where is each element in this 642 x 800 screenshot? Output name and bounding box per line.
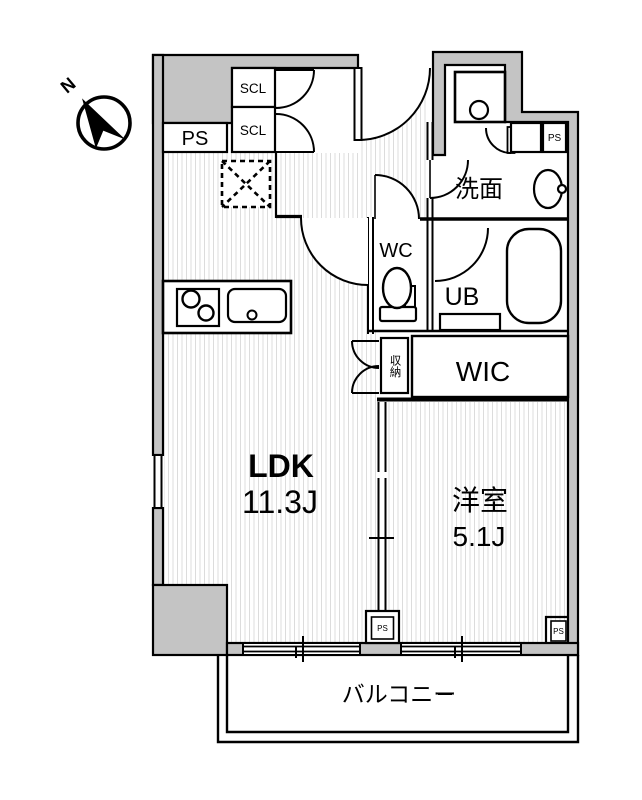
- bathtub: [440, 229, 561, 330]
- label-scl-lower: SCL: [240, 123, 267, 138]
- bath-step: [440, 314, 500, 330]
- label-storage: 収納: [389, 355, 402, 379]
- label-ps-top-right: PS: [548, 133, 562, 144]
- floorplan-drawing: N PS SCL SCL PS 洗面 WC UB WIC 収納 LDK 11.3…: [0, 0, 642, 800]
- label-bedroom-name: 洋室: [452, 485, 508, 516]
- toilet-bowl: [383, 268, 411, 308]
- label-balcony: バルコニー: [342, 681, 457, 707]
- washing-machine: [455, 72, 505, 122]
- sink-drain: [248, 311, 257, 320]
- label-ps-top-left: PS: [182, 128, 209, 150]
- label-ub: UB: [445, 283, 480, 311]
- floorplan-page: N PS SCL SCL PS 洗面 WC UB WIC 収納 LDK 11.3…: [0, 0, 642, 800]
- kitchen-counter: [163, 281, 291, 333]
- label-ldk-size: 11.3J: [242, 484, 318, 520]
- wall-bottom-left-block: [153, 585, 227, 655]
- label-wic: WIC: [456, 356, 510, 387]
- bath-door: [435, 228, 488, 281]
- label-scl-upper: SCL: [240, 81, 267, 96]
- label-washroom: 洗面: [455, 176, 503, 203]
- compass-needle: [83, 100, 123, 147]
- wall-west-lower: [153, 508, 163, 585]
- label-bedroom-size: 5.1J: [453, 521, 506, 552]
- compass-n-label: N: [57, 74, 80, 98]
- toilet: [380, 268, 416, 321]
- label-ps-bottom-right: PS: [553, 627, 564, 636]
- burner-large: [183, 291, 200, 308]
- wash-basin: [534, 170, 566, 208]
- label-wc: WC: [379, 240, 412, 262]
- label-ps-bottom-center: PS: [377, 624, 388, 633]
- shoe-closet-doors: [276, 70, 314, 152]
- label-ldk-name: LDK: [248, 448, 314, 484]
- window-west: [152, 455, 164, 508]
- refrigerator-space: [222, 161, 270, 207]
- utility-box-top-right: [511, 123, 541, 152]
- wall-west-upper: [153, 55, 163, 455]
- burner-small: [199, 306, 214, 321]
- compass: N: [57, 74, 130, 149]
